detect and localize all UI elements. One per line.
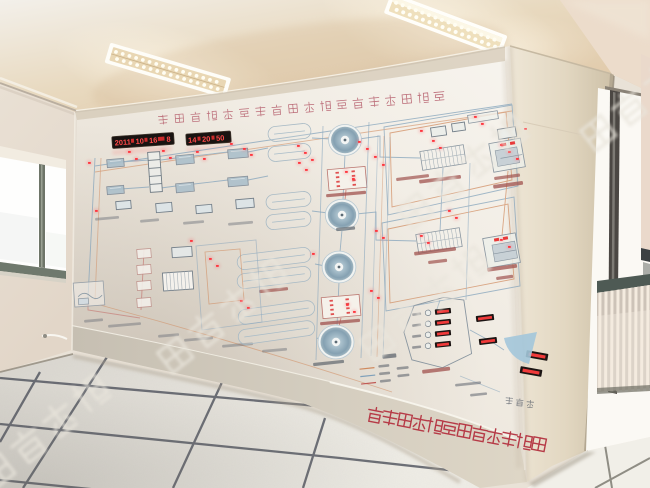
- svg-text:50: 50: [216, 133, 225, 143]
- svg-text:16: 16: [149, 136, 158, 146]
- svg-text:2011: 2011: [114, 137, 131, 147]
- svg-text:8: 8: [166, 135, 171, 144]
- svg-text:20: 20: [202, 134, 211, 144]
- svg-text:14: 14: [188, 135, 198, 145]
- svg-text:10: 10: [135, 136, 144, 146]
